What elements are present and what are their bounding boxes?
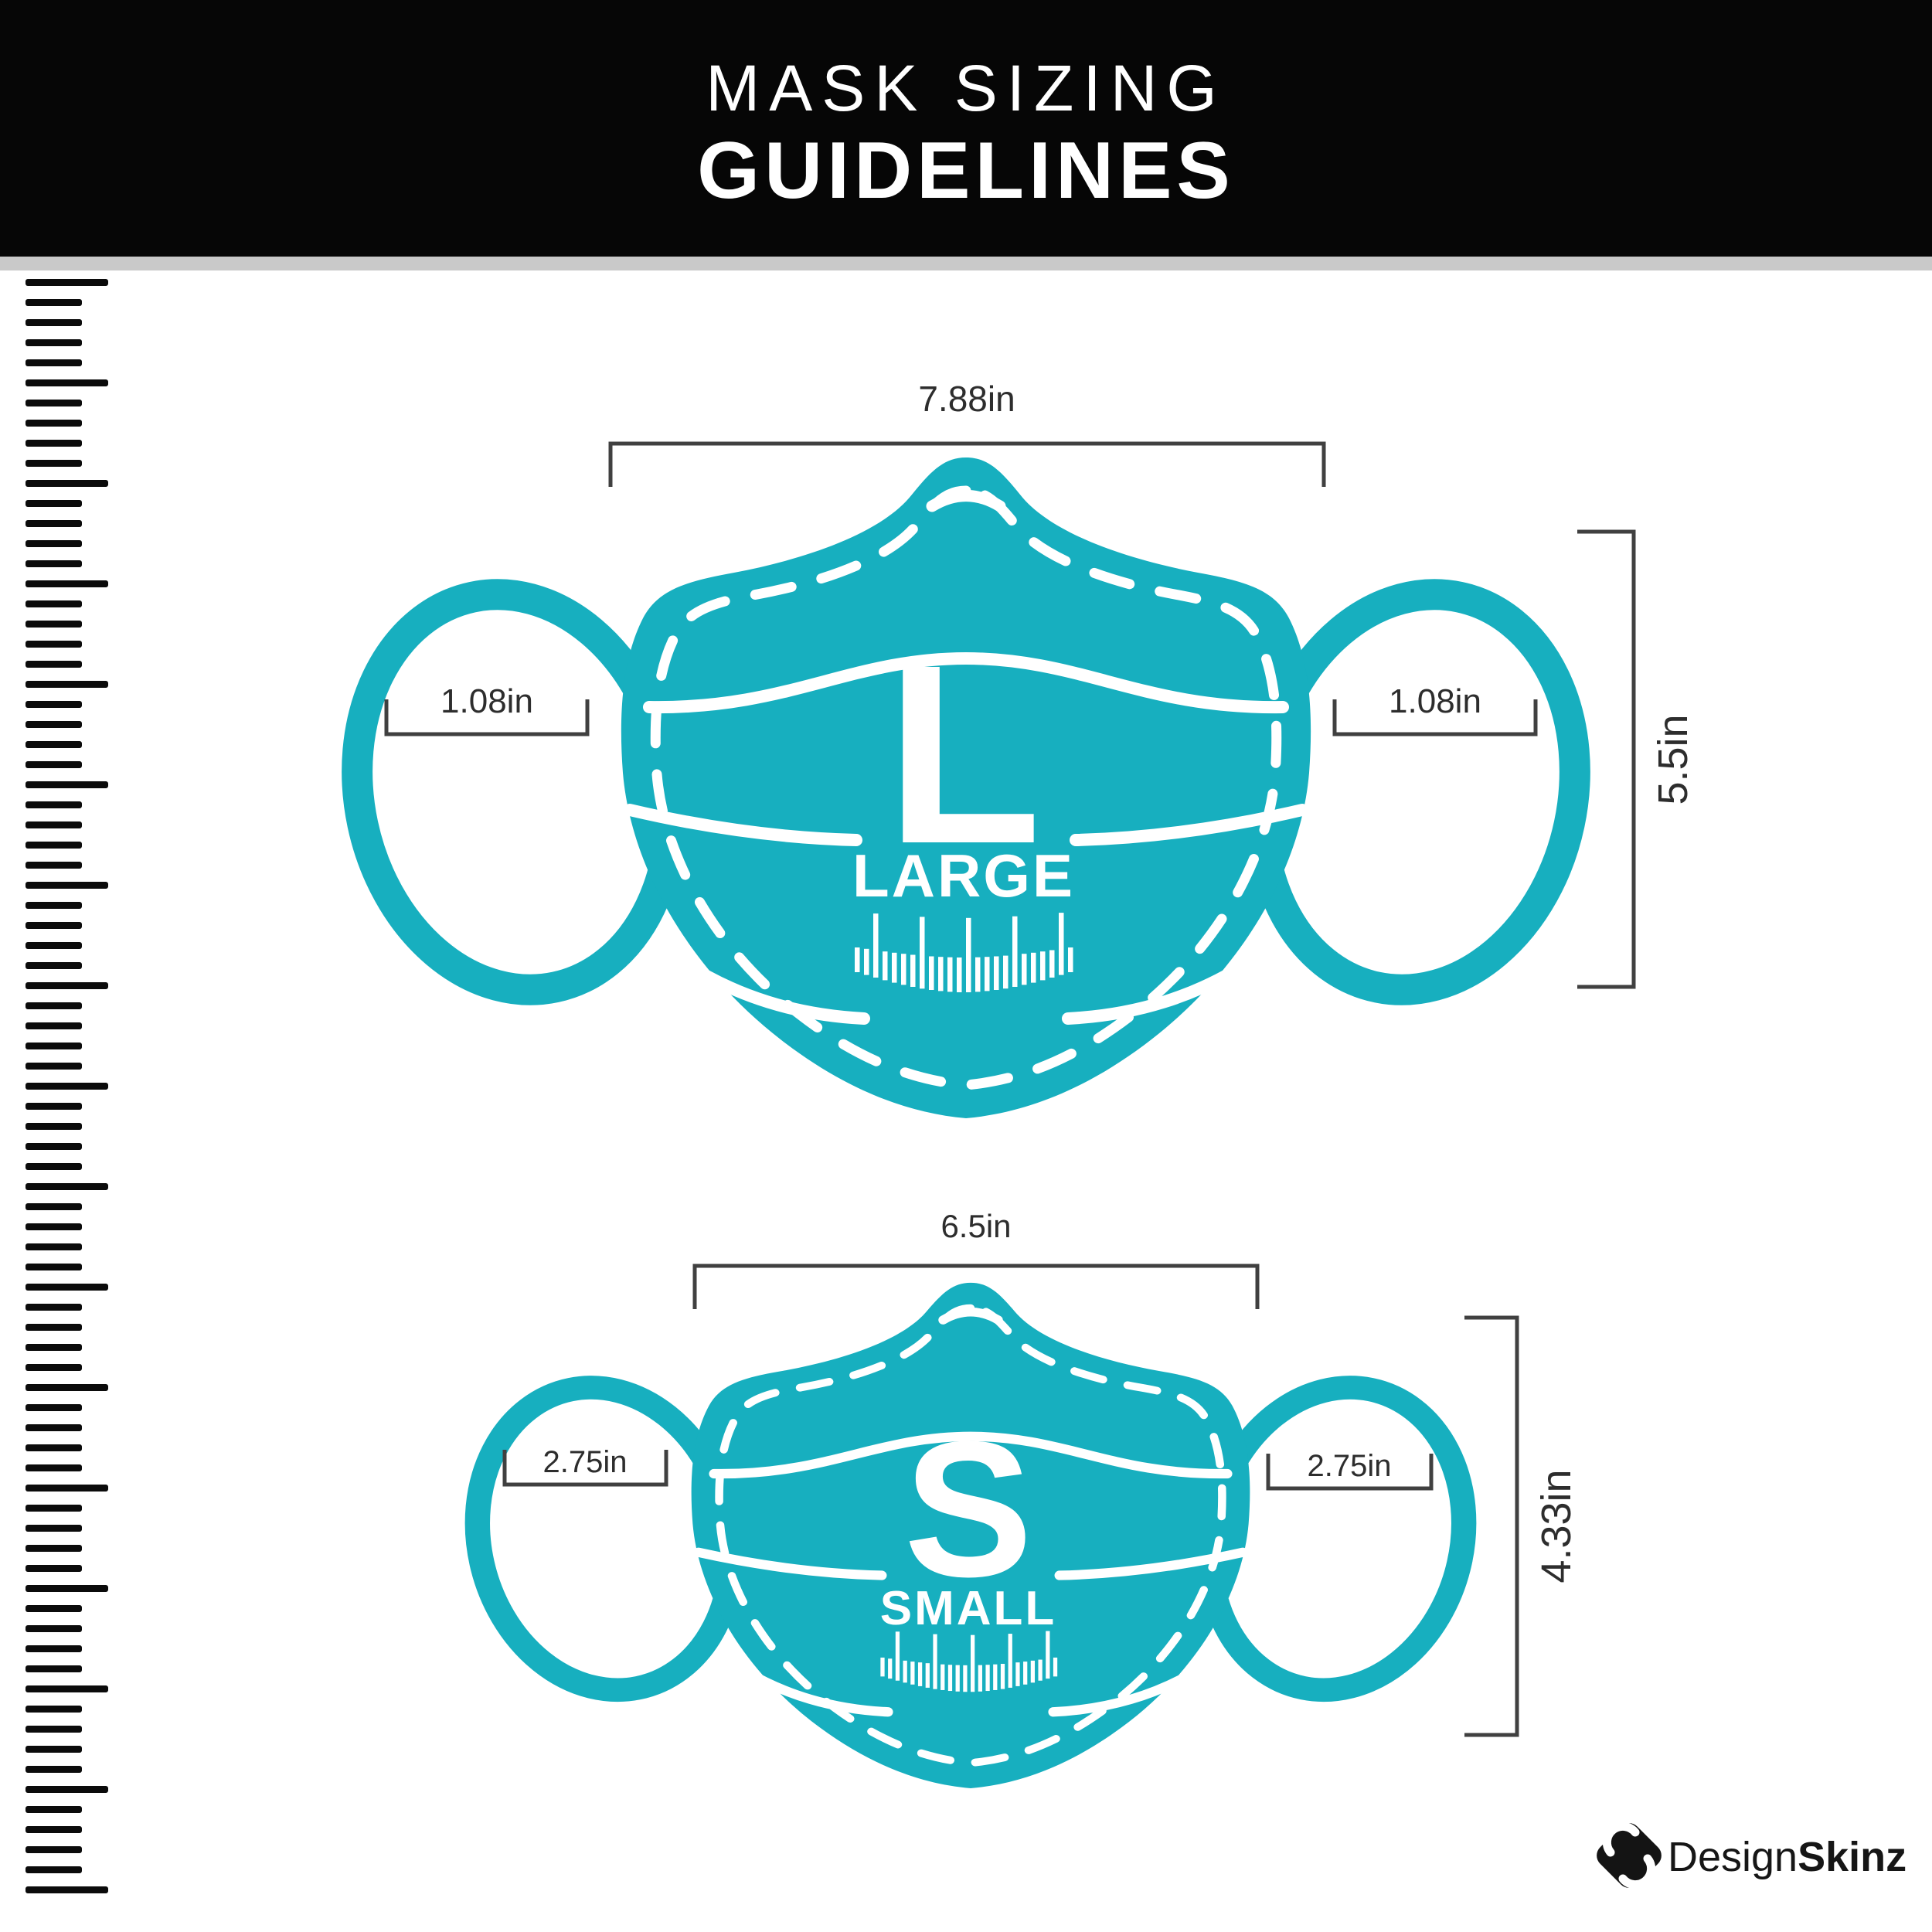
dim-label-small-ear-left: 2.75in	[543, 1445, 628, 1479]
dim-label-large-ear-left: 1.08in	[440, 682, 533, 720]
dim-label-large-height: 5.5in	[1650, 714, 1696, 804]
brand-logo: DesignSkinz	[1592, 1818, 1906, 1893]
dim-label-small-height: 4.33in	[1533, 1469, 1580, 1583]
mask-large-name: LARGE	[852, 842, 1075, 910]
mask-small-name: SMALL	[880, 1582, 1057, 1635]
mask-small: S SMALL	[448, 1283, 1493, 1788]
dim-label-large-width: 7.88in	[918, 379, 1015, 419]
mask-large: L LARGE	[321, 457, 1611, 1118]
brand-name-regular: Design	[1668, 1834, 1798, 1880]
dim-label-small-ear-right: 2.75in	[1308, 1449, 1392, 1483]
designskinz-diamond-s-icon	[1592, 1818, 1666, 1893]
brand-name-bold: Skinz	[1798, 1834, 1906, 1880]
dim-label-large-ear-right: 1.08in	[1389, 682, 1481, 720]
brand-logo-text: DesignSkinz	[1668, 1834, 1906, 1880]
dim-label-small-width: 6.5in	[940, 1208, 1011, 1244]
mask-sizing-diagram: L LARGE S SMALL 7.88in 5.5in 1.08in 1.08…	[0, 0, 1932, 1932]
